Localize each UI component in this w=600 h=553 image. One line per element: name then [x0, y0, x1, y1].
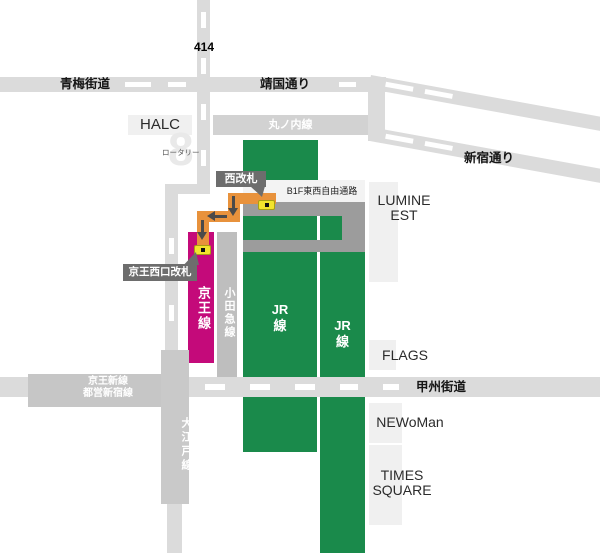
road-dash — [201, 104, 206, 120]
building-newoman-label: NEWoMan — [372, 415, 448, 430]
route414-label: 414 — [186, 40, 222, 54]
road-dash — [205, 384, 225, 390]
road-dash — [424, 89, 452, 99]
road-dash — [385, 134, 413, 144]
keio-line-label: 京王線 — [194, 286, 213, 331]
rotary-label: ロータリー — [162, 147, 200, 158]
arrow-down-icon — [197, 232, 207, 240]
road-dash — [168, 82, 186, 87]
jr-line-east-column — [320, 252, 365, 553]
road-dash — [385, 82, 413, 92]
road-dash — [201, 58, 206, 74]
road-dash — [201, 150, 206, 166]
marunouchi-line-label: 丸ノ内線 — [213, 115, 368, 135]
jr-concourse-bottom — [243, 240, 365, 252]
arrow-left-icon — [207, 211, 215, 221]
oedo-line-label: 大江戸線 — [166, 417, 194, 473]
b1f-passage-label: B1F東西自由通路 — [279, 180, 365, 202]
road-dash — [201, 12, 206, 28]
road-west-thin — [165, 184, 178, 378]
road-dash — [339, 82, 356, 87]
jr-concourse-right — [342, 216, 365, 240]
station-map: 丸ノ内線 B1F東西自由通路 京王新線 都営新宿線 大江戸線 京王線 小田急線 … — [0, 0, 600, 553]
koshu-kaido-label: 甲州街道 — [391, 377, 491, 397]
building-flags-label: FLAGS — [369, 348, 441, 363]
odakyu-line-label: 小田急線 — [221, 287, 237, 339]
ticket-gate-icon — [194, 245, 211, 255]
arrow-down-icon — [228, 208, 238, 216]
jr-block-mid-west — [243, 216, 317, 240]
shinjuku-dori-label: 新宿通り — [439, 147, 539, 166]
building-lumine-est-label: LUMINE EST — [369, 193, 439, 223]
road-dash — [340, 384, 358, 390]
west-gate-callout: 西改札 — [216, 171, 266, 187]
jr-block-mid-east — [320, 216, 342, 240]
ticket-gate-icon — [258, 200, 275, 210]
road-yasukuni-diagonal — [368, 75, 600, 132]
arrow-left-icon — [214, 215, 227, 218]
jr-line-east-label: JR 線 — [320, 318, 365, 349]
jr-line-west-column — [243, 252, 317, 452]
road-dash — [250, 384, 270, 390]
road-dash — [169, 238, 174, 254]
road-south-thin — [167, 503, 182, 553]
building-times-square-label: TIMES SQUARE — [366, 468, 438, 498]
road-dash — [295, 384, 315, 390]
keio-west-gate-callout: 京王西口改札 — [123, 264, 197, 281]
arrow-down-icon — [232, 196, 235, 208]
road-dash — [169, 305, 174, 321]
ome-kaido-label: 青梅街道 — [35, 77, 135, 92]
jr-line-west-label: JR 線 — [243, 302, 317, 333]
yasukuni-dori-label: 靖国通り — [235, 77, 335, 92]
